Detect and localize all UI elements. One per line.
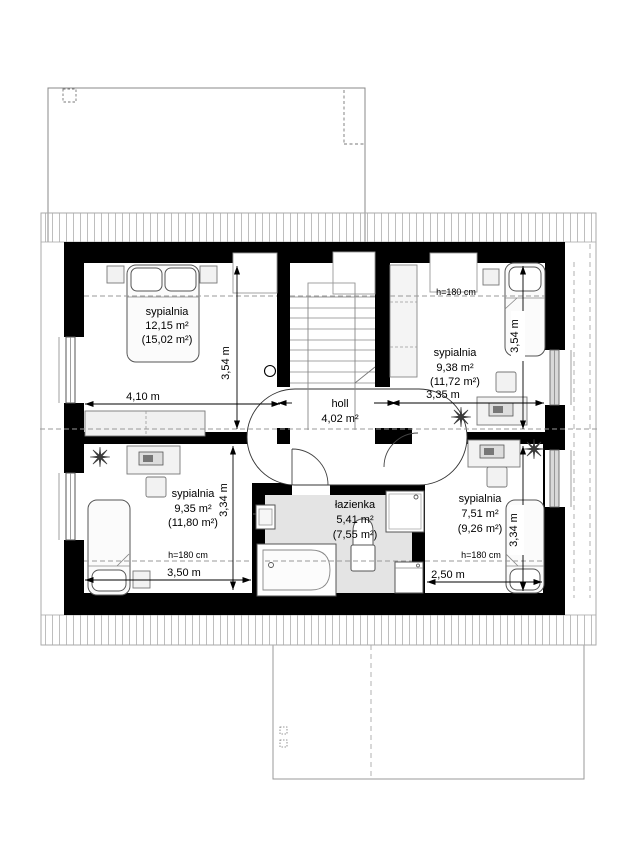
room-name: sypialnia — [146, 306, 190, 318]
stool — [487, 467, 507, 487]
room-area: 5,41 m² — [336, 514, 374, 526]
pillow — [509, 267, 541, 291]
room-area-total: (9,26 m²) — [458, 523, 503, 535]
room-area: 7,51 m² — [461, 508, 499, 520]
plant — [90, 447, 110, 467]
pillow — [92, 570, 126, 591]
dim-label: 3,54 m — [220, 346, 232, 380]
toilet-tank — [351, 545, 375, 571]
room-name: sypialnia — [172, 488, 216, 500]
dim-label: 3,50 m — [167, 567, 201, 579]
dim-label: 3,34 m — [218, 483, 230, 517]
stool — [496, 372, 516, 392]
room-area: 12,15 m² — [145, 320, 189, 332]
room-area-total: (11,72 m²) — [430, 376, 480, 388]
room-area: 9,35 m² — [174, 503, 212, 515]
wall-stub-left — [277, 428, 290, 444]
eaves-hatch-bottom — [41, 615, 596, 645]
room-area-total: (11,80 m²) — [168, 517, 218, 529]
nightstand — [133, 571, 150, 588]
roof-window-notch — [233, 253, 277, 293]
room-name: łazienka — [335, 499, 376, 511]
knee-wall-label: h=180 cm — [436, 287, 476, 297]
room-name: sypialnia — [434, 347, 478, 359]
computer-screen — [143, 455, 153, 462]
dim-label: 3,34 m — [508, 513, 520, 547]
vent-outline — [280, 727, 287, 734]
room-area-total: (15,02 m²) — [142, 334, 193, 346]
wardrobe-low-cabinet — [85, 411, 205, 436]
floor-plan-canvas: sypialnia 12,15 m² (15,02 m²) 4,10 m 3,5… — [0, 0, 637, 853]
room-name: sypialnia — [459, 493, 503, 505]
dim-label: 3,35 m — [426, 389, 460, 401]
room-area: 4,02 m² — [321, 413, 359, 425]
roof-outline-bottom — [273, 645, 584, 779]
floor-plan-drawing: sypialnia 12,15 m² (15,02 m²) 4,10 m 3,5… — [0, 0, 637, 853]
pillow — [131, 268, 162, 291]
plant — [451, 407, 471, 427]
computer-screen — [493, 406, 503, 413]
nightstand — [200, 266, 217, 283]
stool — [146, 477, 166, 497]
room-area: 9,38 m² — [436, 362, 474, 374]
flue-vent — [265, 366, 276, 377]
pillow — [165, 268, 196, 291]
stair-opening — [333, 252, 375, 294]
wardrobe — [390, 265, 417, 377]
dim-label: 2,50 m — [431, 569, 465, 581]
chimney-outline — [63, 89, 76, 102]
pillow — [510, 569, 540, 590]
knee-wall-label: h=180 cm — [461, 550, 501, 560]
computer-screen — [484, 448, 494, 455]
dim-label: 4,10 m — [126, 391, 160, 403]
vent-outline — [280, 740, 287, 747]
room-area-total: (7,55 m²) — [333, 529, 378, 541]
wall-stub-right — [375, 428, 412, 444]
knee-wall-label: h=180 cm — [168, 550, 208, 560]
eaves-hatch-top — [41, 213, 596, 242]
nightstand — [107, 266, 124, 283]
dim-label: 3,54 m — [509, 319, 521, 353]
room-name: holl — [331, 398, 348, 410]
nightstand — [483, 269, 499, 285]
plant — [524, 439, 544, 459]
